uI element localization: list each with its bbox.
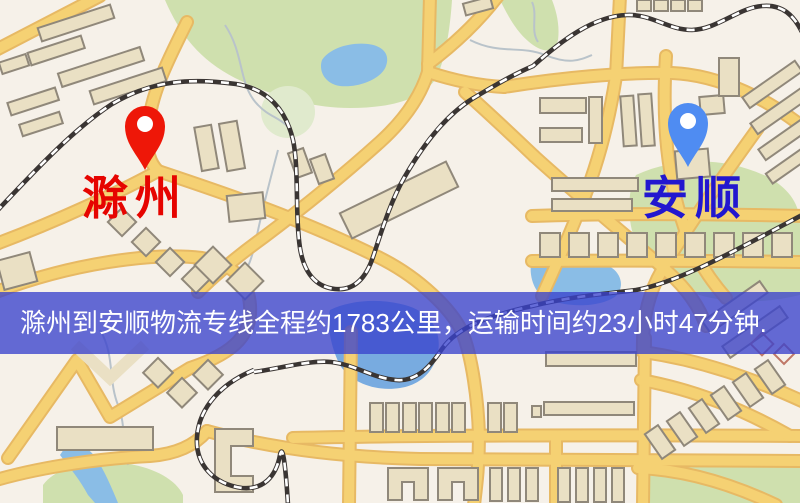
destination-city-label: 安顺	[642, 176, 748, 222]
pin-hole	[137, 116, 153, 132]
pin-hole	[680, 113, 696, 129]
route-info-text: 滁州到安顺物流专线全程约1783公里，运输时间约23小时47分钟.	[20, 308, 767, 338]
route-info-banner: 滁州到安顺物流专线全程约1783公里，运输时间约23小时47分钟.	[0, 292, 800, 354]
map-canvas	[0, 0, 800, 503]
origin-city-label: 滁州	[82, 176, 188, 222]
destination-pin-icon	[664, 99, 712, 169]
origin-pin-icon	[121, 102, 169, 172]
map-screenshot: 滁州 安顺 滁州到安顺物流专线全程约1783公里，运输时间约23小时47分钟.	[0, 0, 800, 503]
